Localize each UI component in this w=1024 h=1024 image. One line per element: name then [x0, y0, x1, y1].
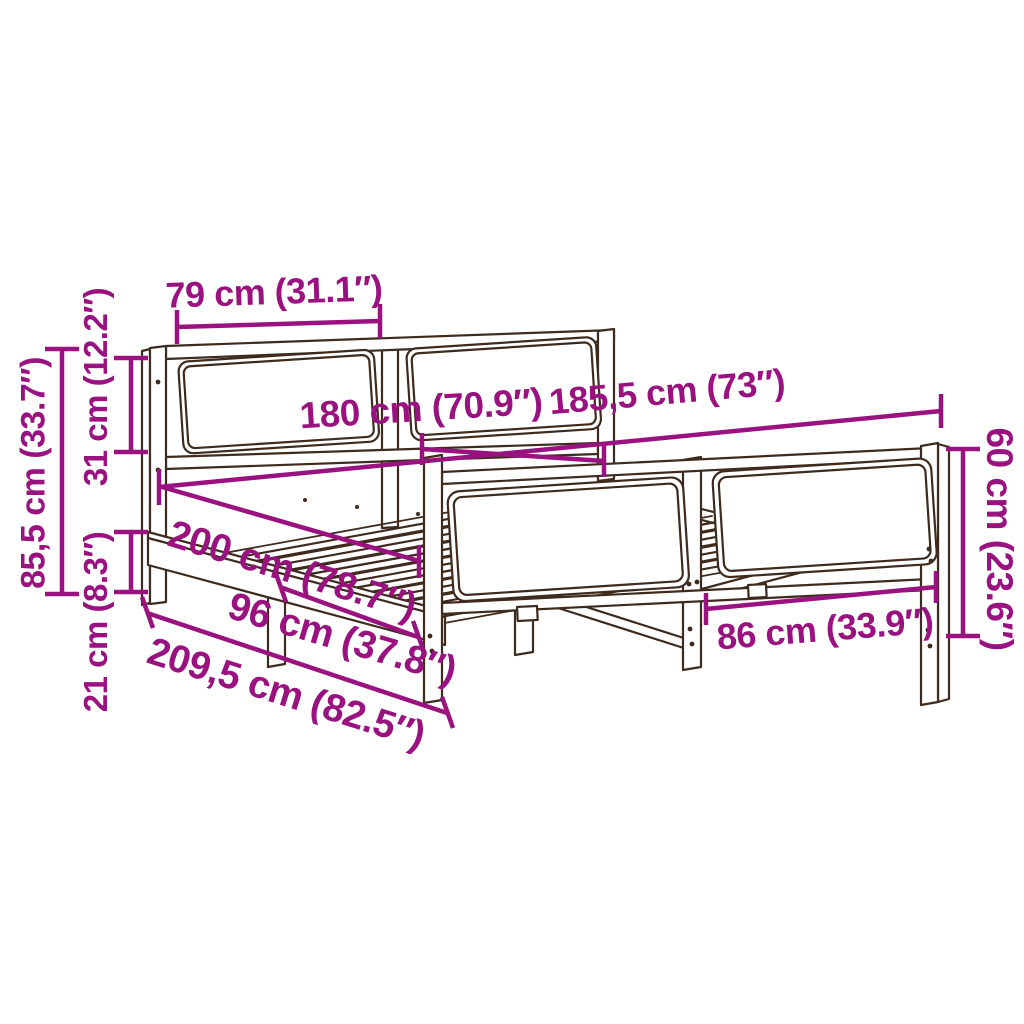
bracket-right — [748, 584, 767, 598]
footboard-left-panel — [447, 477, 690, 602]
bracket-left — [517, 606, 538, 621]
footboard-right-post-side — [938, 444, 949, 702]
headboard-center-post — [382, 339, 398, 528]
dimension-diagram: 79 cm (31.1″) 85,5 cm (33.7″) 31 cm (12.… — [0, 0, 1024, 1024]
dim-line-footboard-height — [946, 449, 980, 636]
headboard-left-post-side — [142, 349, 150, 605]
footboard-right-panel — [712, 458, 937, 578]
bed-frame-drawing — [0, 0, 1024, 1024]
dim-label-headboard-total-height: 85,5 cm (33.7″) — [15, 357, 54, 589]
dim-label-base-leg-height: 21 cm (8.3″) — [77, 532, 115, 712]
dim-label-footboard-height: 60 cm (23.6″) — [978, 427, 1020, 650]
footboard — [424, 443, 949, 705]
dim-label-headboard-panel-width: 79 cm (31.1″) — [165, 267, 383, 317]
dim-label-headboard-panel-height: 31 cm (12.2″) — [77, 288, 115, 486]
